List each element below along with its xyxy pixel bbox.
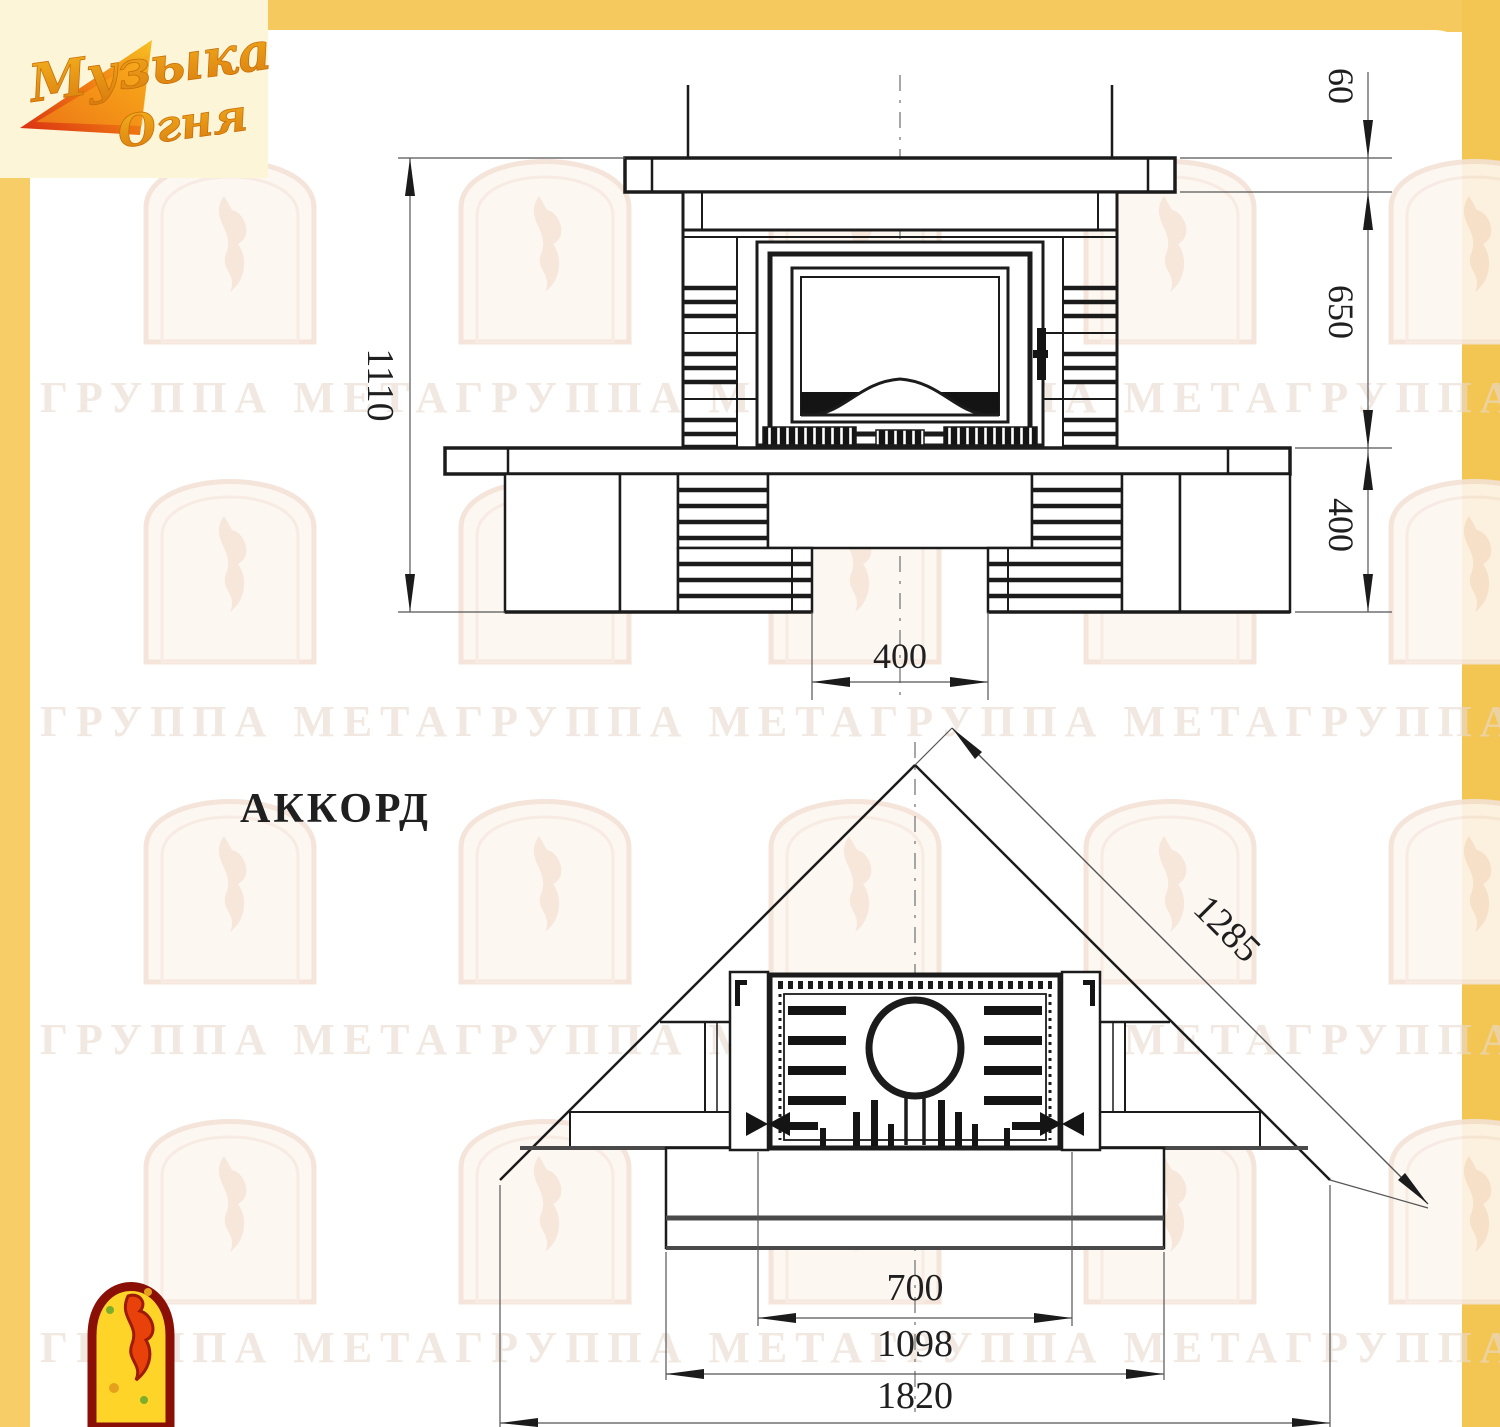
side-bench-left [570,1112,730,1148]
mantel-shelf [625,158,1175,192]
side-bench-right [1100,1112,1260,1148]
center-pedestal [768,474,1032,548]
watermark-text-row: ГРУППА МЕТАГРУППА МЕТАГРУППА МЕТАГРУППА … [40,1323,1500,1372]
dim-mantel-to-hearth: 650 [1321,285,1361,339]
hearth-platform [666,1148,1164,1248]
firebox-door [757,242,1048,445]
dim-hearth-width: 1098 [877,1323,953,1365]
plan-firebox [746,975,1084,1148]
air-grill-left [763,427,856,445]
dim-hearth-to-floor: 400 [1321,498,1361,552]
model-title: АККОРД [240,786,431,832]
dim-overall-width: 1820 [877,1375,953,1417]
dim-base-recess: 400 [873,636,927,676]
air-grill-center [876,430,924,445]
frame-strip-left [0,0,30,1427]
hearth-slab [445,448,1290,474]
mantel-under-beam [683,192,1117,230]
brand-logo: Музыка Огня [0,0,275,178]
drawing-page: ГРУППА МЕТАГРУППА МЕТАГРУППА МЕТАГРУППА … [0,0,1500,1427]
fireplace-technical-drawing: ГРУППА МЕТАГРУППА МЕТАГРУППА МЕТАГРУППА … [0,0,1500,1427]
air-grill-right [944,427,1037,445]
flame-emblem-icon [92,1287,170,1427]
dim-mantel-thickness: 60 [1321,68,1361,104]
dim-opening-width: 700 [887,1267,944,1309]
watermark-text-row: ГРУППА МЕТАГРУППА МЕТАГРУППА МЕТАГРУППА … [40,697,1500,746]
dim-total-height: 1110 [359,348,401,421]
flue-circle [869,1000,961,1096]
